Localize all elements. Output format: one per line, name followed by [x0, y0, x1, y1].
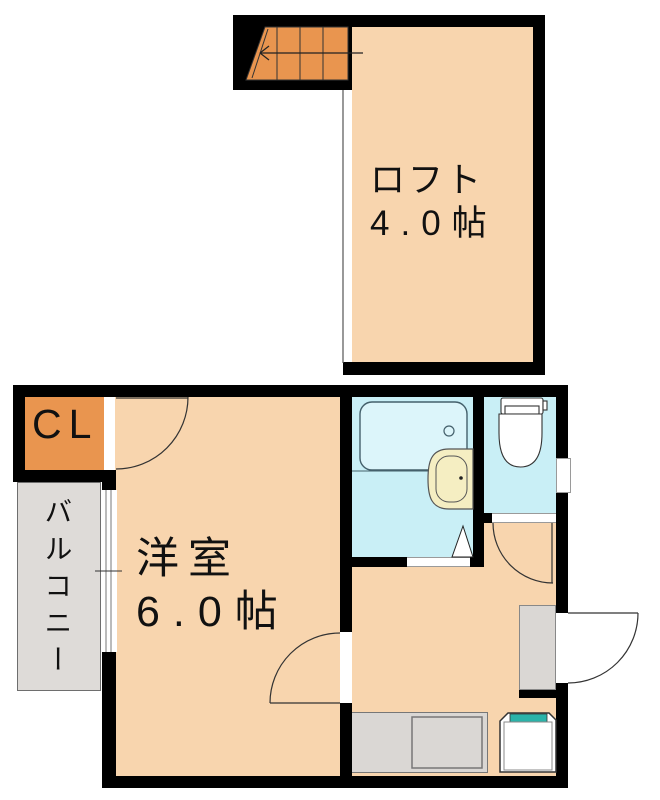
entrance-door-swing — [568, 613, 638, 683]
bath-door-opening — [407, 557, 470, 567]
toilet-wall-bottom — [473, 513, 492, 523]
room-door-opening — [340, 632, 352, 703]
wall-right — [556, 385, 568, 788]
toilet-door-opening — [492, 513, 556, 523]
closet-wall-left — [13, 385, 25, 482]
loft-area: 4.0帖 — [370, 206, 498, 243]
toilet-window — [556, 458, 571, 493]
kitchen-counter — [350, 712, 488, 773]
loft-name: ロフト — [370, 163, 498, 200]
room-wall-right — [340, 385, 352, 776]
loft-wall-top — [233, 15, 545, 27]
entrance-door-opening — [556, 613, 568, 683]
loft-wall-right — [533, 15, 545, 375]
balcony-label: バルコニー — [42, 497, 71, 682]
balcony-window — [101, 490, 117, 652]
wall-top — [13, 385, 568, 397]
western-room-label: 洋室 6.0帖 — [136, 537, 291, 635]
loft-wall-bottom — [343, 362, 545, 375]
loft-label: ロフト 4.0帖 — [370, 163, 498, 243]
room-wall-left-upper — [102, 470, 116, 490]
shoe-cabinet — [519, 605, 556, 690]
closet-label: CL — [32, 403, 98, 446]
closet-wall-bottom — [13, 470, 108, 482]
room-wall-left-lower — [102, 652, 116, 788]
bath-toilet-divider-wall — [473, 385, 484, 567]
bathroom-floor — [352, 397, 473, 557]
floorplan: ロフト 4.0帖 洋室 6.0帖 CL バルコニー — [0, 0, 660, 800]
bath-wall-bottom-stub — [470, 557, 484, 567]
wall-bottom — [102, 776, 568, 788]
western-room-area: 6.0帖 — [136, 590, 291, 635]
western-room-name: 洋室 — [136, 537, 291, 582]
toilet-room-floor — [484, 397, 556, 513]
entrance-step-wall — [519, 690, 556, 698]
bath-wall-bottom — [340, 557, 407, 567]
